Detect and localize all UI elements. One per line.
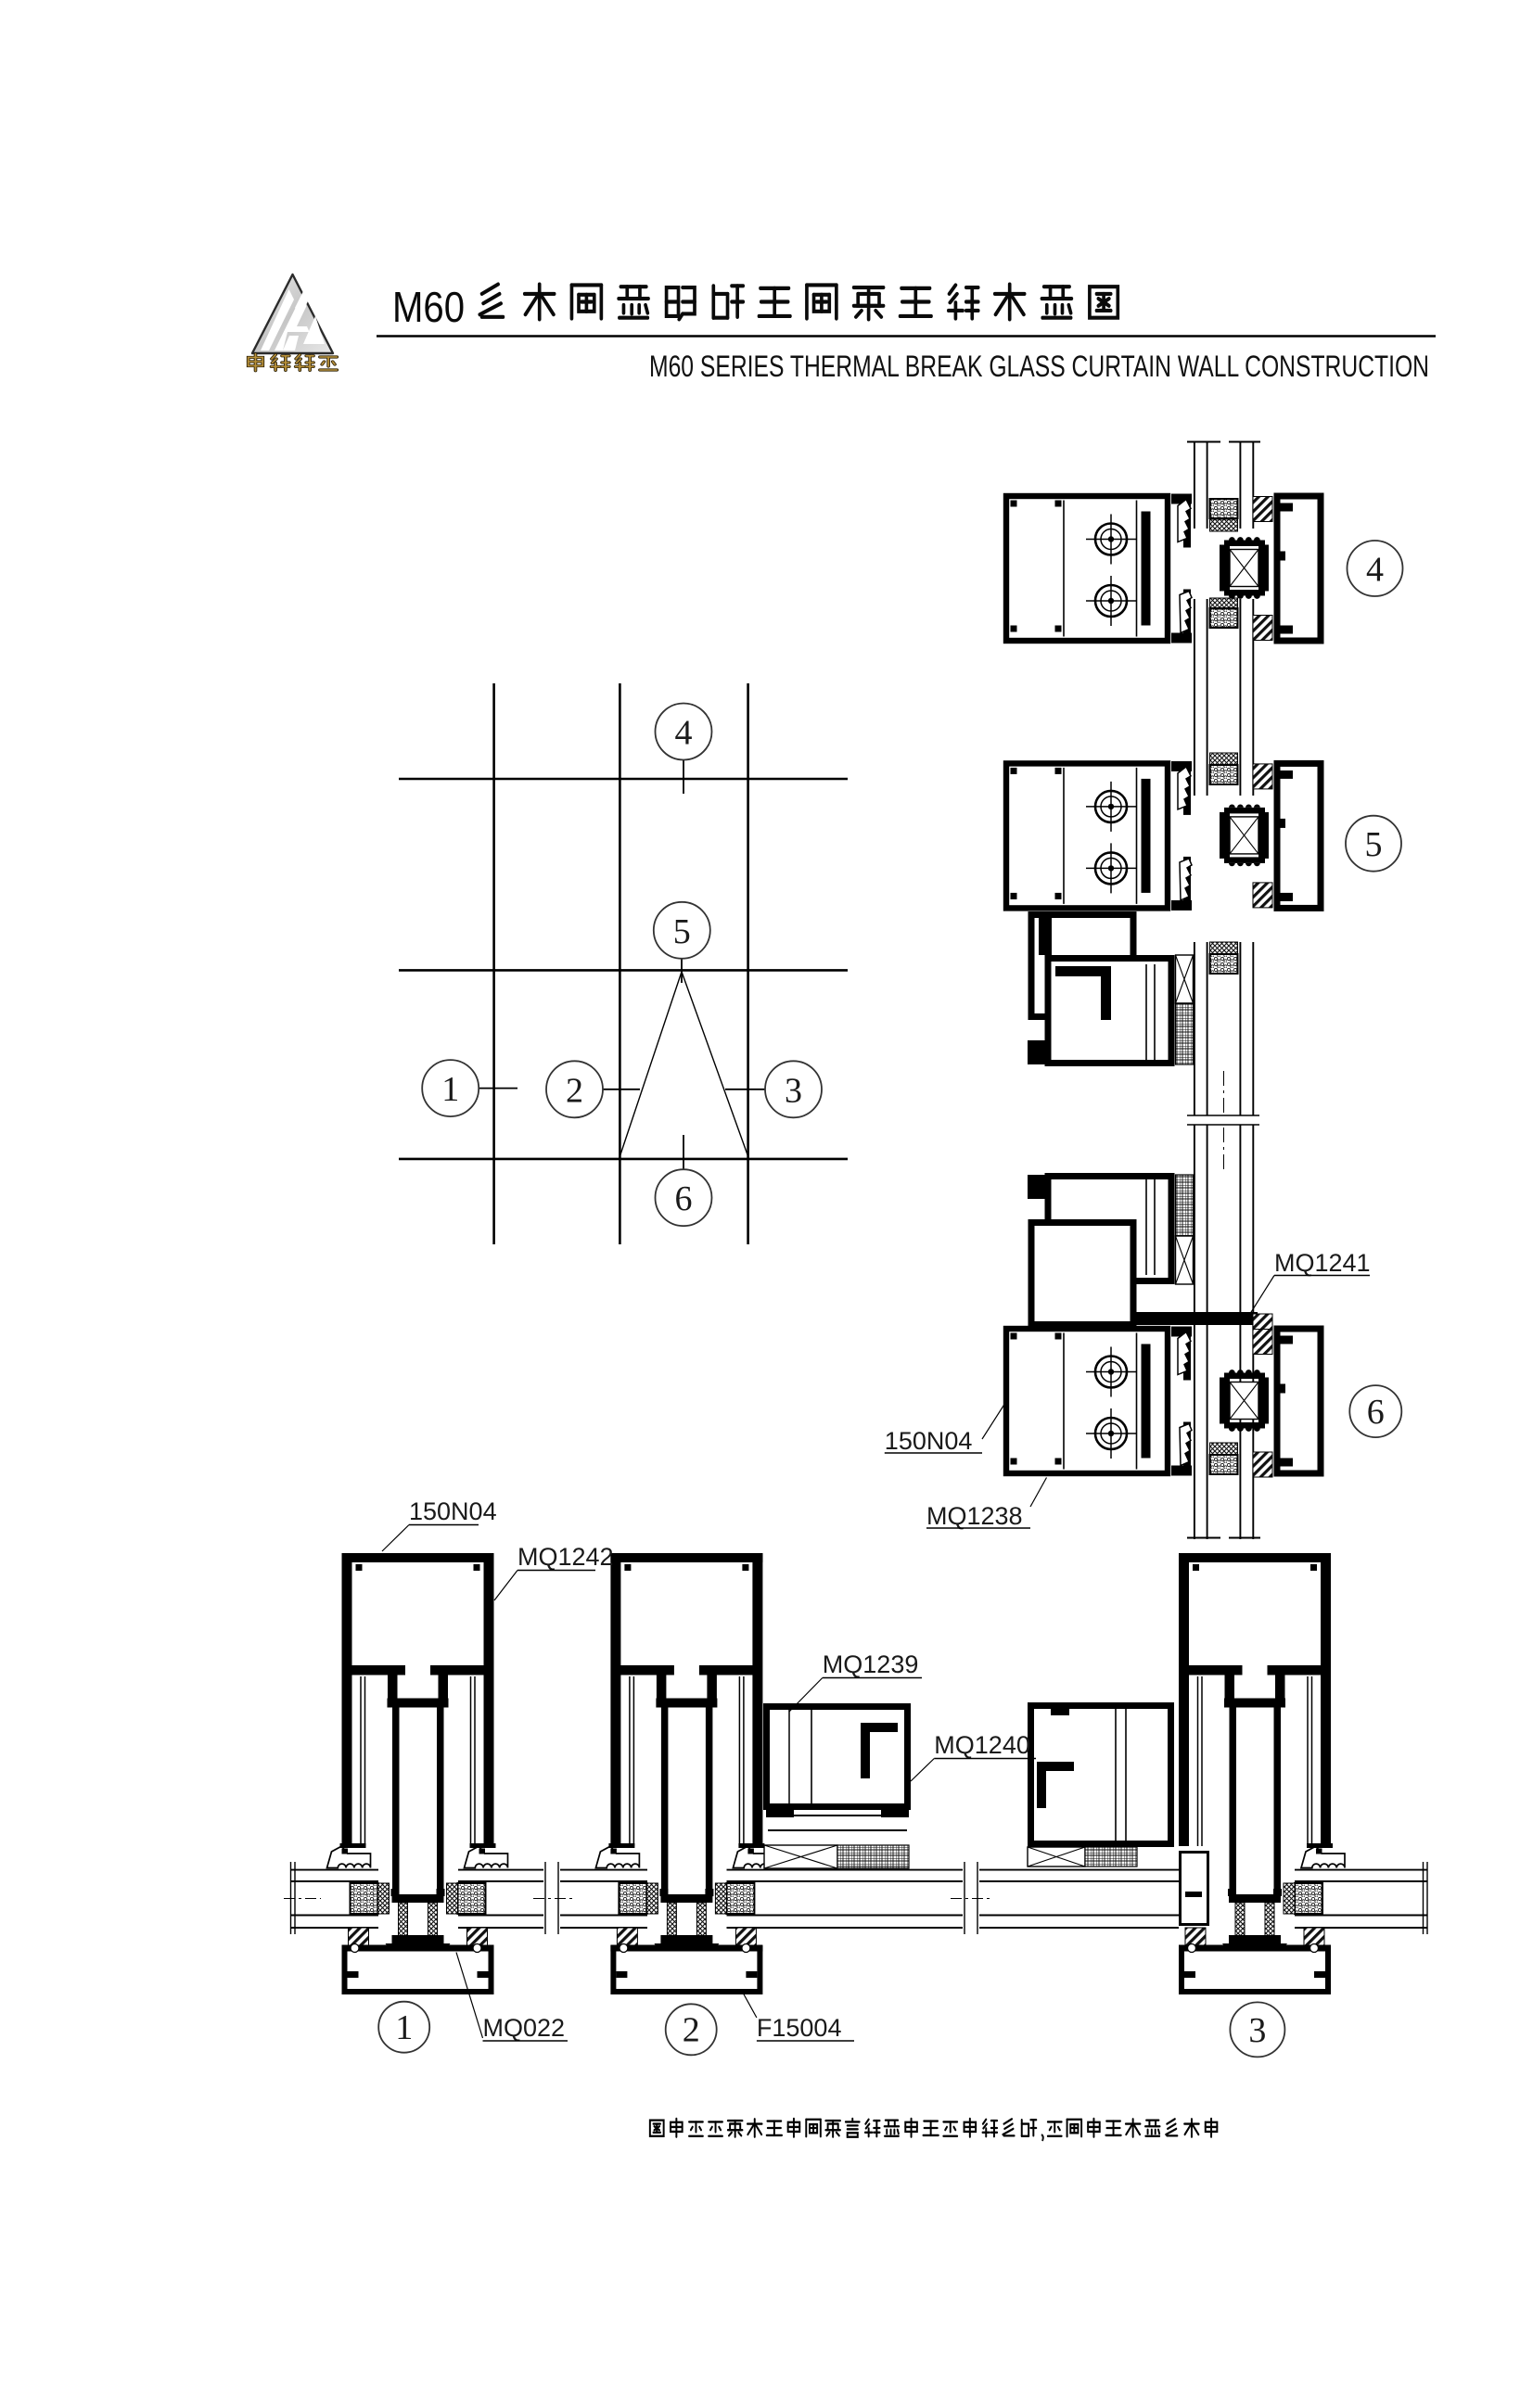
svg-text:M60: M60	[392, 283, 465, 331]
svg-text:5: 5	[1365, 825, 1383, 864]
svg-text:4: 4	[1366, 551, 1384, 590]
svg-text:2: 2	[683, 2011, 700, 2050]
svg-text:MQ1242: MQ1242	[517, 1543, 614, 1571]
svg-text:6: 6	[1367, 1393, 1385, 1432]
svg-text:3: 3	[1248, 2011, 1266, 2050]
svg-text:MQ1241: MQ1241	[1274, 1249, 1371, 1277]
svg-text:F15004: F15004	[757, 2014, 842, 2042]
svg-text:150N04: 150N04	[409, 1497, 497, 1525]
svg-text:1: 1	[395, 2008, 413, 2047]
svg-text:3: 3	[785, 1071, 802, 1110]
svg-text:4: 4	[675, 714, 693, 753]
svg-text:MQ1238: MQ1238	[926, 1502, 1023, 1530]
svg-text:1: 1	[441, 1070, 459, 1109]
svg-text:5: 5	[673, 912, 691, 951]
svg-text:MQ022: MQ022	[483, 2014, 566, 2042]
svg-text:150N04: 150N04	[885, 1427, 973, 1455]
svg-text:M60 SERIES THERMAL BREAK GLASS: M60 SERIES THERMAL BREAK GLASS CURTAIN W…	[649, 350, 1429, 383]
svg-text:MQ1239: MQ1239	[823, 1650, 919, 1678]
svg-text:2: 2	[566, 1071, 583, 1110]
svg-text:6: 6	[675, 1179, 693, 1218]
svg-text:MQ1240: MQ1240	[934, 1731, 1030, 1759]
